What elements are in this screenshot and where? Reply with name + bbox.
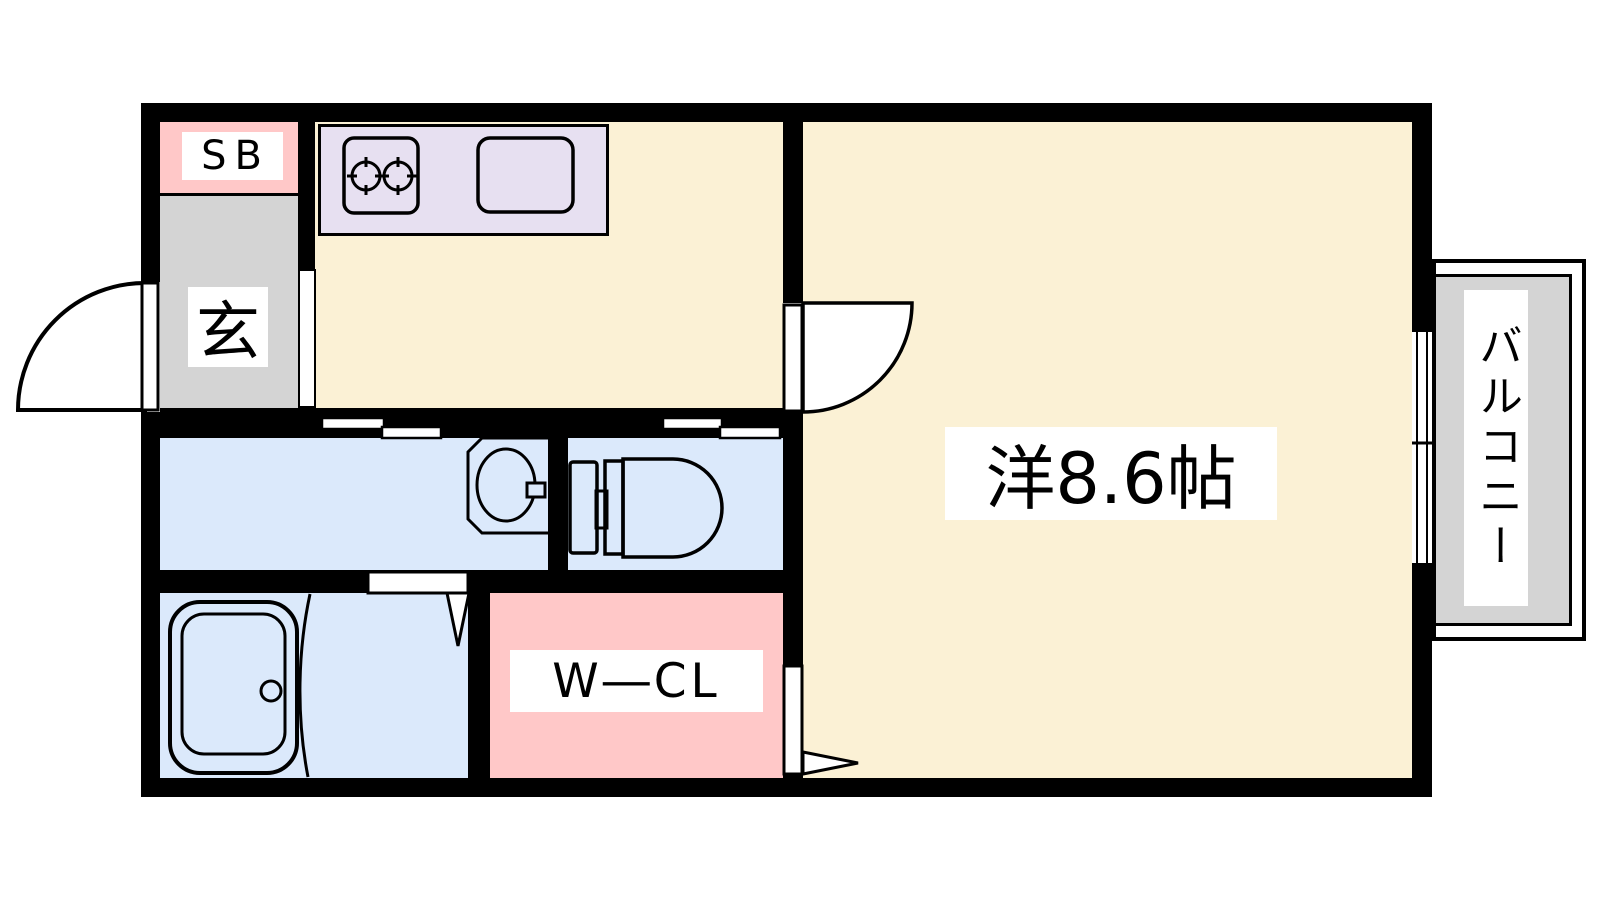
wall-bathroom-closet — [468, 593, 490, 778]
wall-entrance-kitchen — [298, 122, 315, 270]
toilet-room-area — [568, 438, 783, 570]
main-room-label-text: 洋8.6帖 — [985, 423, 1236, 524]
closet-label-text: W―CL — [552, 654, 720, 709]
wall-washroom-toilet — [548, 438, 568, 570]
entrance-label-text: 玄 — [196, 281, 260, 373]
wall-bottom — [141, 778, 1432, 797]
kitchen-counter — [318, 124, 609, 236]
wall-washroom-bathroom — [160, 570, 785, 593]
entrance-label: 玄 — [188, 287, 268, 367]
wall-top — [141, 103, 1432, 122]
entrance-door-opening — [141, 282, 160, 412]
balcony-label-text: バルコニー — [1464, 323, 1528, 573]
closet-door-opening — [783, 665, 803, 775]
bathroom-area — [160, 593, 468, 778]
floor-plan: SB 玄 洋8.6帖 W―CL バルコニー — [0, 0, 1600, 900]
washroom-area — [160, 438, 548, 570]
main-door-opening — [783, 303, 803, 412]
balcony-label: バルコニー — [1464, 290, 1528, 606]
main-room-label: 洋8.6帖 — [945, 427, 1277, 520]
shoe-box-label-text: SB — [201, 133, 270, 179]
wall-left — [141, 103, 160, 797]
balcony-window-opening — [1412, 332, 1432, 563]
shoe-box-label: SB — [182, 132, 283, 180]
closet-label: W―CL — [510, 650, 763, 712]
entrance-door-icon — [18, 283, 158, 410]
entrance-kitchen-opening — [299, 270, 315, 407]
wall-kitchen-washroom — [160, 408, 785, 438]
